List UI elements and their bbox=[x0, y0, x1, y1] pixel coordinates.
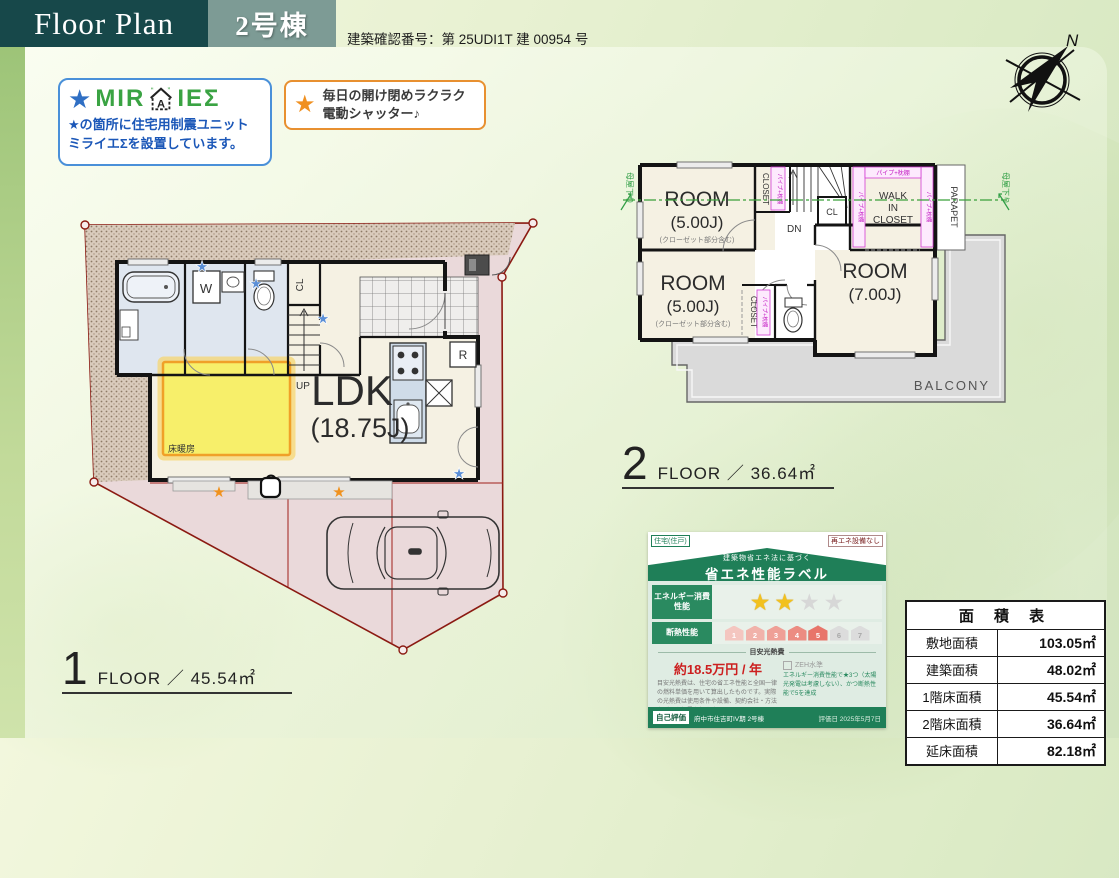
self-evaluation-badge: 自己評価 bbox=[653, 711, 689, 724]
svg-text:母屋下り: 母屋下り bbox=[1001, 172, 1010, 204]
closet-label: CL bbox=[295, 278, 306, 291]
cost-header: 目安光熱費 bbox=[658, 647, 876, 657]
svg-text:パイプ+枕棚: パイプ+枕棚 bbox=[857, 192, 865, 223]
zeh-label: ZEH水準 bbox=[795, 660, 823, 670]
svg-text:★: ★ bbox=[195, 259, 209, 276]
svg-text:★: ★ bbox=[212, 484, 225, 501]
svg-text:R: R bbox=[459, 348, 468, 362]
stairs-up-label: UP bbox=[296, 381, 310, 392]
insulation-level-4: 4 bbox=[788, 626, 807, 641]
renewable-none-badge: 再エネ設備なし bbox=[828, 535, 883, 547]
compass-north-label: N bbox=[1066, 31, 1079, 50]
evaluation-date: 評価日 2025年5月7日 bbox=[819, 713, 882, 723]
room1-closet: CLOSET パイプ+枕棚 bbox=[761, 167, 785, 210]
miraie-logo-text-right: IEΣ bbox=[177, 87, 220, 111]
floor2-cl: CL bbox=[818, 197, 846, 225]
floor2-plan: BALCONY PARAPET DN CL bbox=[615, 150, 1015, 430]
miraie-seismic-box: ★ MIR “ ” A IEΣ ★の箇所に住宅用制震ユニット ミライエΣを設置し… bbox=[58, 78, 272, 166]
miraie-house-icon: “ ” A bbox=[147, 85, 175, 113]
moya-sagari-left: 母屋下り bbox=[621, 172, 634, 210]
shutter-note-line1: 毎日の開け閉めラクラク bbox=[323, 87, 466, 105]
energy-label-subtitle: 建築物省エネ法に基づく bbox=[648, 553, 886, 563]
table-row: 敷地面積 103.05㎡ bbox=[907, 630, 1104, 657]
table-row: 建築面積 48.02㎡ bbox=[907, 657, 1104, 684]
table-row: 延床面積 82.18㎡ bbox=[907, 738, 1104, 764]
svg-text:W: W bbox=[200, 281, 213, 296]
room3-label: ROOM bbox=[842, 260, 907, 283]
blue-star-icon: ★ bbox=[68, 86, 91, 112]
star-empty-icon: ★ bbox=[824, 589, 845, 616]
floor1-number: 1 bbox=[62, 648, 88, 689]
page-title: Floor Plan bbox=[0, 0, 208, 47]
area-row-label: 延床面積 bbox=[907, 738, 998, 764]
table-row: 2階床面積 36.64㎡ bbox=[907, 711, 1104, 738]
insulation-level-6: 6 bbox=[830, 626, 849, 641]
stairs-down-label: DN bbox=[787, 224, 801, 235]
floor-heating-label: 床暖房 bbox=[168, 443, 195, 454]
svg-text:★: ★ bbox=[249, 276, 263, 293]
left-green-strip bbox=[0, 47, 25, 738]
floor1-area: FLOOR ／ 45.54㎡ bbox=[98, 664, 257, 689]
energy-label-type-badge: 住宅(住戸) bbox=[651, 535, 690, 547]
floor2-area: FLOOR ／ 36.64㎡ bbox=[658, 459, 817, 484]
floor2-number: 2 bbox=[622, 443, 648, 484]
star-filled-icon: ★ bbox=[750, 589, 771, 616]
miraie-logo: ★ MIR “ ” A IEΣ bbox=[68, 85, 262, 113]
ldk-size-label: (18.75J) bbox=[310, 413, 409, 443]
star-empty-icon: ★ bbox=[799, 589, 820, 616]
confirmation-number: 建築確認番号：第 25UDI1T 建 00954 号 bbox=[347, 28, 588, 48]
moya-sagari-right: 母屋下り bbox=[999, 172, 1010, 210]
area-row-label: 建築面積 bbox=[907, 657, 998, 683]
svg-text:母屋下り: 母屋下り bbox=[625, 172, 634, 204]
balcony-label: BALCONY bbox=[914, 378, 990, 393]
refrigerator-space: R bbox=[450, 342, 476, 367]
svg-text:“: “ bbox=[151, 85, 154, 95]
zeh-row: ZEH水準 bbox=[783, 660, 877, 670]
svg-text:★: ★ bbox=[316, 311, 330, 328]
insulation-level-7: 7 bbox=[851, 626, 870, 641]
ldk-label: LDK bbox=[311, 367, 393, 414]
insulation-scale: 1 2 3 4 5 6 7 bbox=[712, 622, 882, 644]
floor2-caption: 2 FLOOR ／ 36.64㎡ bbox=[622, 443, 834, 489]
zeh-checkbox-icon bbox=[783, 661, 792, 670]
shutter-note-box: ★ 毎日の開け閉めラクラク 電動シャッター♪ bbox=[284, 80, 486, 130]
insulation-label: 断熱性能 bbox=[652, 622, 712, 644]
energy-label-header: 建築物省エネ法に基づく 省エネ性能ラベル bbox=[648, 548, 886, 581]
insulation-level-1: 1 bbox=[725, 626, 744, 641]
svg-text:A: A bbox=[157, 98, 165, 110]
seismic-note-line1: ★の箇所に住宅用制震ユニット bbox=[68, 116, 262, 135]
floor1-plan: 床暖房 UP bbox=[60, 215, 560, 685]
shutter-note-line2: 電動シャッター♪ bbox=[323, 105, 466, 123]
table-row: 1階床面積 45.54㎡ bbox=[907, 684, 1104, 711]
area-row-value: 36.64㎡ bbox=[998, 711, 1104, 737]
insulation-level-2: 2 bbox=[746, 626, 765, 641]
estimated-utility-cost: 約18.5万円 / 年 bbox=[657, 659, 779, 678]
area-row-label: 2階床面積 bbox=[907, 711, 998, 737]
insulation-level-5-achieved: 5 bbox=[809, 626, 828, 641]
compass-icon: N bbox=[998, 30, 1088, 122]
svg-text:パイプ+枕棚: パイプ+枕棚 bbox=[761, 297, 769, 328]
floor2-toilet bbox=[784, 298, 802, 332]
room2-note: (クローゼット部分含む) bbox=[656, 319, 731, 328]
area-row-value: 103.05㎡ bbox=[998, 630, 1104, 656]
svg-text:パイプ+枕棚: パイプ+枕棚 bbox=[925, 192, 933, 223]
floor1-caption: 1 FLOOR ／ 45.54㎡ bbox=[62, 648, 292, 694]
svg-text:PARAPET: PARAPET bbox=[949, 186, 959, 228]
parapet: PARAPET bbox=[937, 165, 965, 250]
svg-text:★: ★ bbox=[452, 466, 466, 483]
orange-star-icon: ★ bbox=[294, 93, 316, 117]
energy-performance-label: 住宅(住戸) 再エネ設備なし 建築物省エネ法に基づく 省エネ性能ラベル エネルギ… bbox=[648, 532, 886, 728]
area-row-value: 45.54㎡ bbox=[998, 684, 1104, 710]
area-row-label: 敷地面積 bbox=[907, 630, 998, 656]
area-table-title: 面 積 表 bbox=[907, 602, 1104, 630]
seismic-note-line2: ミライエΣを設置しています。 bbox=[68, 135, 262, 154]
svg-text:CLOSET: CLOSET bbox=[873, 215, 913, 226]
star-filled-icon: ★ bbox=[774, 589, 795, 616]
trash-bin-icon bbox=[261, 476, 280, 497]
area-row-value: 48.02㎡ bbox=[998, 657, 1104, 683]
insulation-level-3: 3 bbox=[767, 626, 786, 641]
room3-size: (7.00J) bbox=[849, 285, 902, 304]
room2-size: (5.00J) bbox=[667, 297, 720, 316]
svg-text:パイプ+枕棚: パイプ+枕棚 bbox=[876, 169, 910, 177]
building-badge: 2号棟 bbox=[208, 0, 336, 47]
room1-note: (クローゼット部分含む) bbox=[660, 235, 735, 244]
zeh-note: エネルギー消費性能で★3つ（太陽光発電は考慮しない）、かつ断熱性能で5を達成 bbox=[783, 672, 877, 699]
svg-text:CL: CL bbox=[826, 207, 838, 217]
energy-consumption-label: エネルギー消費性能 bbox=[652, 585, 712, 619]
svg-text:★: ★ bbox=[332, 484, 345, 501]
area-row-value: 82.18㎡ bbox=[998, 738, 1104, 764]
area-table: 面 積 表 敷地面積 103.05㎡ 建築面積 48.02㎡ 1階床面積 45.… bbox=[905, 600, 1106, 766]
svg-text:IN: IN bbox=[888, 203, 898, 214]
miraie-logo-text-left: MIR bbox=[95, 87, 145, 111]
area-row-label: 1階床面積 bbox=[907, 684, 998, 710]
property-name: 府中市住吉町IV期 2号棟 bbox=[694, 713, 764, 723]
vanity-sink bbox=[222, 272, 244, 292]
room2-label: ROOM bbox=[660, 272, 725, 295]
room1-size: (5.00J) bbox=[671, 213, 724, 232]
energy-label-title: 省エネ性能ラベル bbox=[648, 563, 886, 583]
energy-star-rating: ★ ★ ★ ★ bbox=[712, 585, 882, 619]
